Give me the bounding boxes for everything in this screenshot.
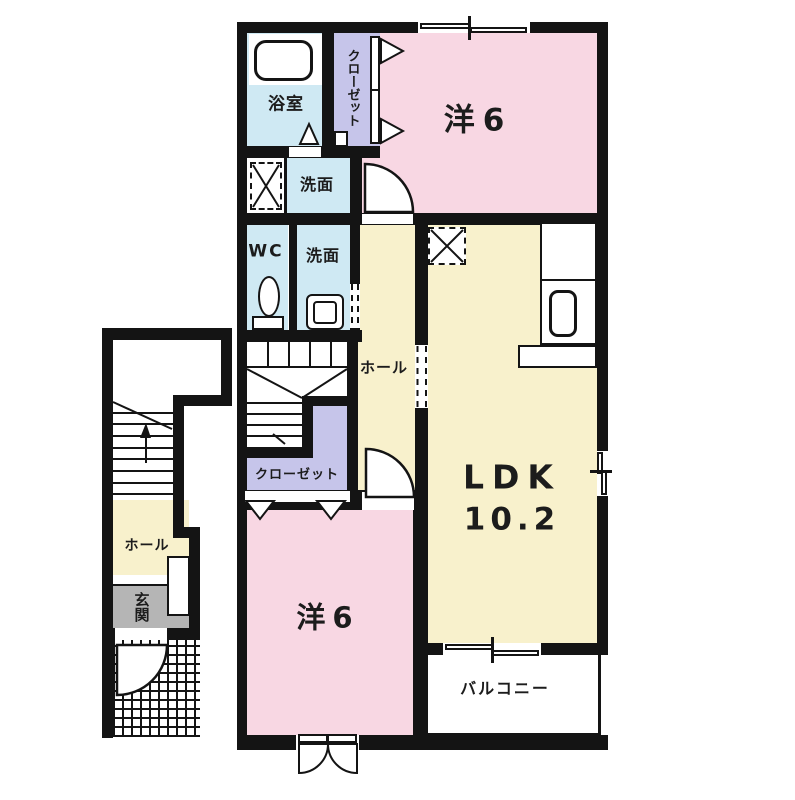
gap-bedroom2-door (362, 492, 414, 510)
wall-left (237, 22, 247, 750)
bedroom-bottom-label: 洋6 (296, 604, 359, 633)
bathtub-icon (254, 40, 313, 81)
window-bed2-leaf1 (298, 734, 328, 743)
entrance-label: 玄関 (134, 592, 149, 622)
fridge-space (428, 227, 466, 265)
wall-stairs-right (347, 330, 358, 497)
bathroom-label: 浴室 (268, 97, 304, 114)
kitchen-divider (540, 279, 597, 281)
kitchen-sink-icon (549, 290, 577, 337)
gap-washroom-slide (350, 284, 360, 328)
sink-icon-inner (313, 301, 337, 324)
window-top-tick (468, 16, 471, 40)
entry-porch (113, 640, 200, 737)
shoe-cabinet (167, 556, 190, 616)
gap-hall-ldk-open (415, 345, 428, 408)
balcony-label: バルコニー (460, 681, 550, 697)
hall-main-label: ホール (360, 361, 408, 376)
ldk-size-label: 10.2 (464, 505, 561, 536)
washroom-lower-label: 洗面 (306, 248, 340, 264)
wall-bath-right (322, 22, 334, 158)
gap-genkan-door (115, 628, 167, 640)
window-top-pane2 (470, 27, 527, 33)
wall-wc-divider (289, 222, 297, 330)
gap-closet-fold (245, 491, 350, 502)
stairblock-wall-rlow (189, 527, 200, 640)
window-balcony-tick (491, 637, 494, 663)
window-bed2-leaf2 (327, 734, 357, 743)
wall-closetarm-top (302, 396, 347, 406)
wall-bed2-ldk (413, 490, 428, 738)
closet-track-split (371, 89, 379, 91)
stairs-external (113, 402, 173, 494)
kitchen-counter-low (518, 345, 597, 368)
closet-nook (334, 131, 348, 147)
wall-laundry-divider (284, 158, 287, 213)
window-balcony-pane1 (445, 644, 493, 650)
bedroom-top-vestibule (362, 158, 380, 213)
closet-top-label: クローゼット (346, 49, 359, 127)
window-right-pane2 (601, 471, 607, 495)
toilet-tank-icon (252, 316, 284, 330)
laundry-pan (250, 162, 282, 210)
washroom-upper-label: 洗面 (300, 177, 334, 193)
entry-hall-label: ホール (125, 539, 170, 553)
toilet-bowl-icon (258, 276, 280, 317)
stairs-up-arrowhead (140, 423, 151, 438)
stairblock-wall-top (102, 328, 232, 340)
wall-wet-bottom (237, 330, 362, 342)
wc-label: WC (248, 244, 283, 261)
window-top-pane1 (420, 23, 470, 29)
wall-stairs-bottom (247, 447, 313, 458)
wall-right (597, 22, 608, 655)
floor-plan: 浴室 クローゼット 洋6 洗面 WC 洗面 ホール クローゼット LDK 10.… (0, 0, 795, 800)
ldk-label: LDK (463, 461, 561, 494)
closet-mid-label: クローゼット (255, 469, 339, 482)
window-balcony-pane2 (492, 650, 539, 656)
window-right-tick (590, 470, 612, 473)
stairblock-wall-left (102, 328, 113, 738)
stairblock-wall-rmid (173, 395, 184, 538)
bedroom-top-label: 洋6 (444, 106, 513, 137)
gap-bedroom1-door (362, 214, 413, 224)
gap-bathroom-door (289, 147, 321, 157)
